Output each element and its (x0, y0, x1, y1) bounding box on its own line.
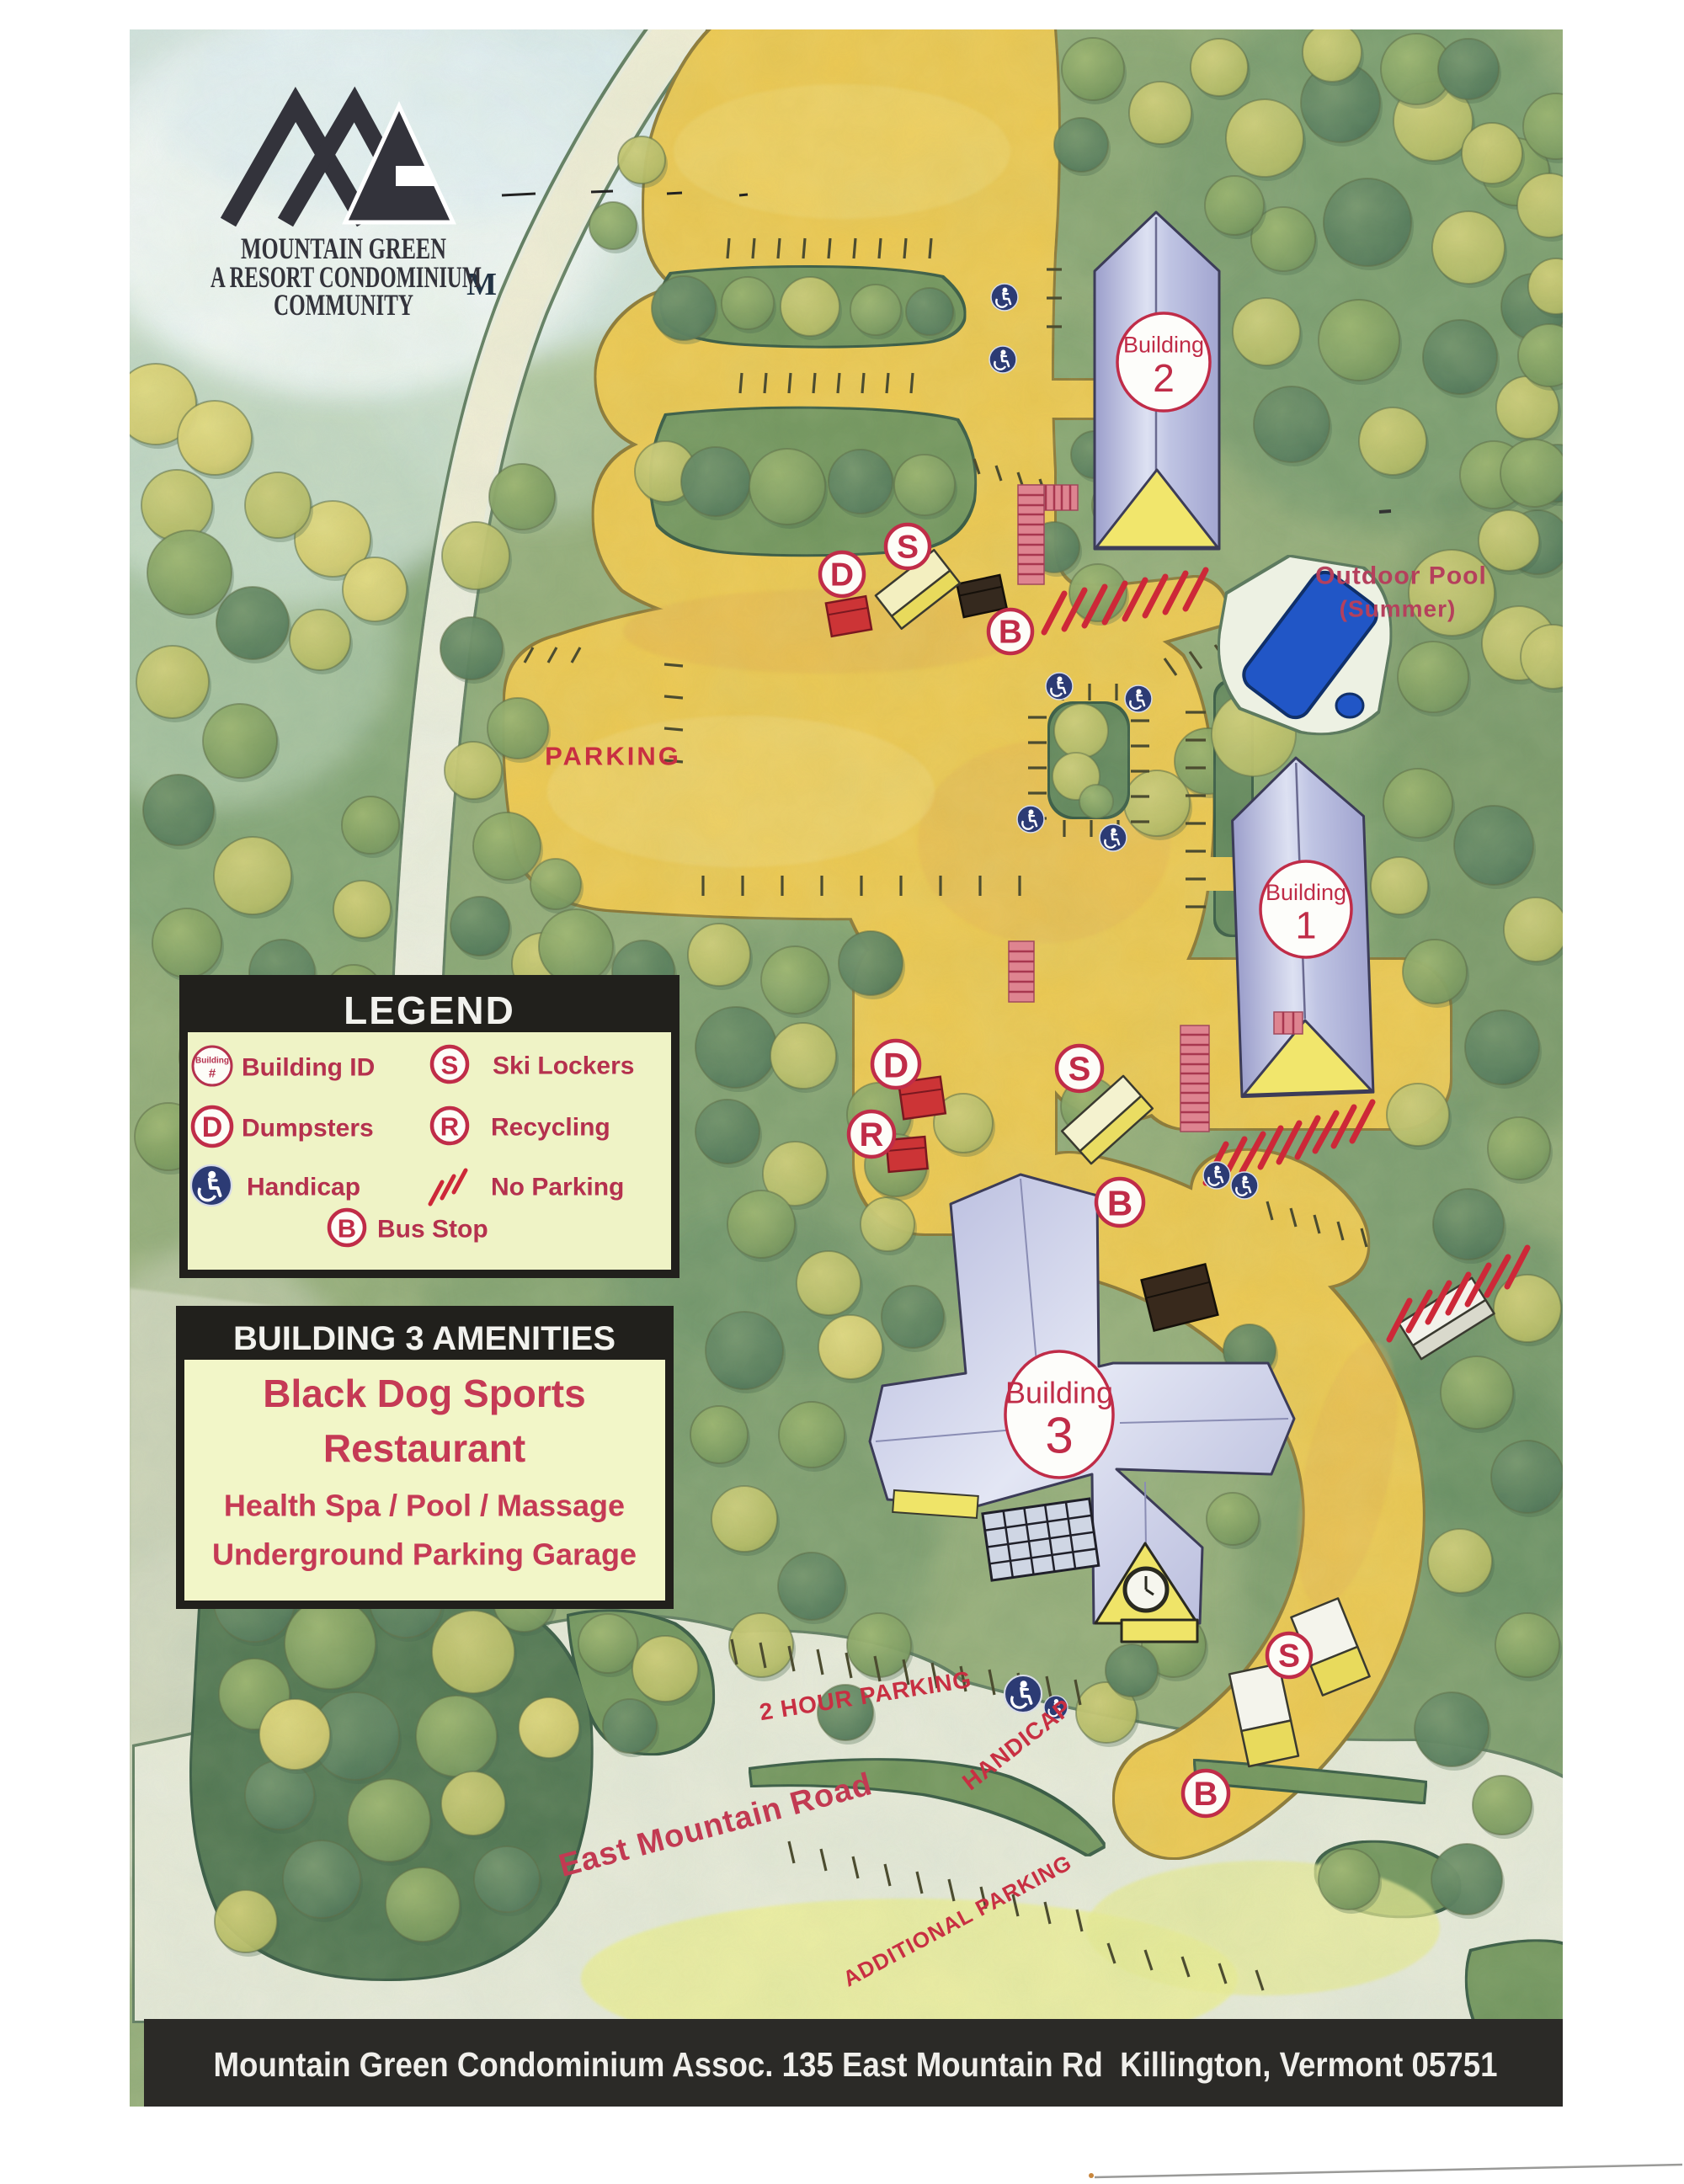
svg-text:Recycling: Recycling (491, 1114, 610, 1142)
svg-text:3: 3 (1045, 1407, 1073, 1463)
svg-text:1: 1 (1295, 903, 1316, 946)
svg-text:S: S (897, 530, 919, 566)
svg-text:B: B (999, 615, 1022, 651)
svg-text:BUILDING 3 AMENITIES: BUILDING 3 AMENITIES (233, 1320, 616, 1357)
svg-text:Dumpsters: Dumpsters (242, 1115, 374, 1143)
svg-text:Ski Lockers: Ski Lockers (493, 1052, 634, 1080)
svg-text:B: B (338, 1214, 356, 1244)
svg-text:Building ID: Building ID (242, 1054, 375, 1082)
svg-text:Handicap: Handicap (247, 1174, 360, 1201)
svg-text:B: B (1194, 1776, 1218, 1813)
svg-text:LEGEND: LEGEND (344, 988, 515, 1032)
svg-text:B: B (1107, 1184, 1132, 1223)
svg-text:No Parking: No Parking (491, 1174, 624, 1201)
svg-text:R: R (860, 1116, 884, 1153)
svg-text:COMMUNITY: COMMUNITY (274, 288, 413, 322)
svg-text:Bus Stop: Bus Stop (377, 1216, 488, 1244)
svg-text:S: S (1278, 1638, 1300, 1675)
svg-text:Black Dog Sports: Black Dog Sports (263, 1372, 585, 1415)
svg-text:Restaurant: Restaurant (323, 1426, 525, 1470)
svg-text:2: 2 (1153, 356, 1175, 400)
svg-text:Building: Building (1005, 1375, 1113, 1409)
svg-text:D: D (202, 1111, 223, 1143)
svg-text:Outdoor Pool: Outdoor Pool (1315, 562, 1487, 590)
svg-text:S: S (441, 1051, 459, 1080)
svg-text:Mountain Green Condominium Ass: Mountain Green Condominium Assoc. 135 Ea… (214, 2045, 1498, 2084)
svg-text:Building: Building (195, 1057, 229, 1066)
svg-text:Health Spa / Pool / Massage: Health Spa / Pool / Massage (224, 1489, 625, 1523)
svg-text:D: D (883, 1046, 909, 1085)
svg-text:R: R (440, 1112, 459, 1142)
svg-text:Building: Building (1123, 333, 1204, 358)
svg-text:PARKING: PARKING (545, 742, 681, 771)
svg-text:#: # (209, 1067, 216, 1081)
svg-text:(Summer): (Summer) (1340, 596, 1457, 622)
svg-text:D: D (830, 557, 854, 594)
svg-text:Building: Building (1266, 880, 1346, 905)
svg-text:Underground Parking Garage: Underground Parking Garage (212, 1537, 637, 1572)
svg-text:S: S (1068, 1051, 1091, 1088)
